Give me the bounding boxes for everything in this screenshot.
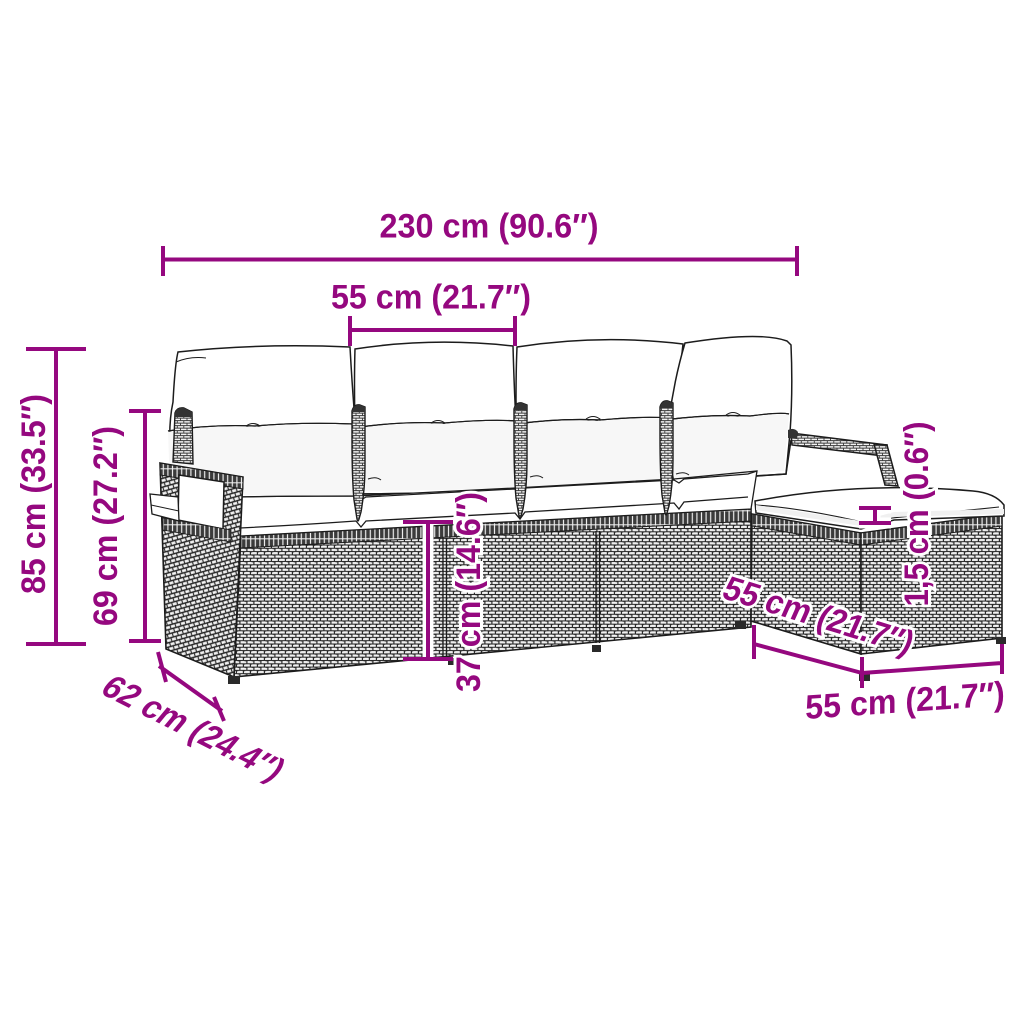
svg-text:230 cm (90.6″): 230 cm (90.6″) (380, 208, 599, 246)
svg-text:85 cm (33.5″): 85 cm (33.5″) (15, 394, 53, 594)
svg-text:55 cm (21.7″): 55 cm (21.7″) (331, 279, 531, 317)
svg-text:69 cm (27.2″): 69 cm (27.2″) (87, 426, 125, 626)
svg-text:37 cm (14.6″): 37 cm (14.6″) (450, 492, 488, 692)
svg-text:1,5 cm (0.6″): 1,5 cm (0.6″) (898, 422, 936, 607)
